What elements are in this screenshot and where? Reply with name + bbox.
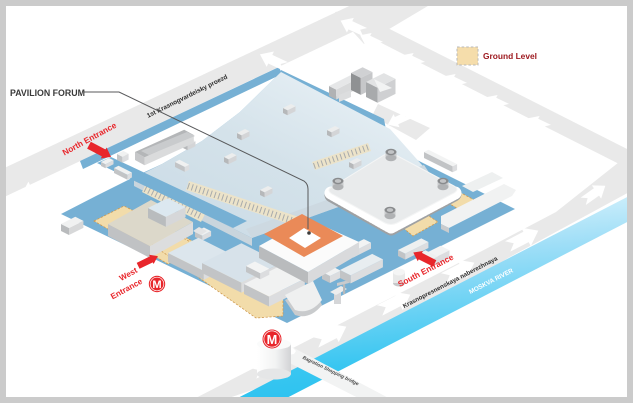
- svg-text:PAVILION FORUM: PAVILION FORUM: [10, 88, 85, 98]
- svg-text:M: M: [267, 332, 278, 347]
- svg-text:M: M: [152, 279, 161, 291]
- svg-text:Ground Level: Ground Level: [483, 51, 537, 61]
